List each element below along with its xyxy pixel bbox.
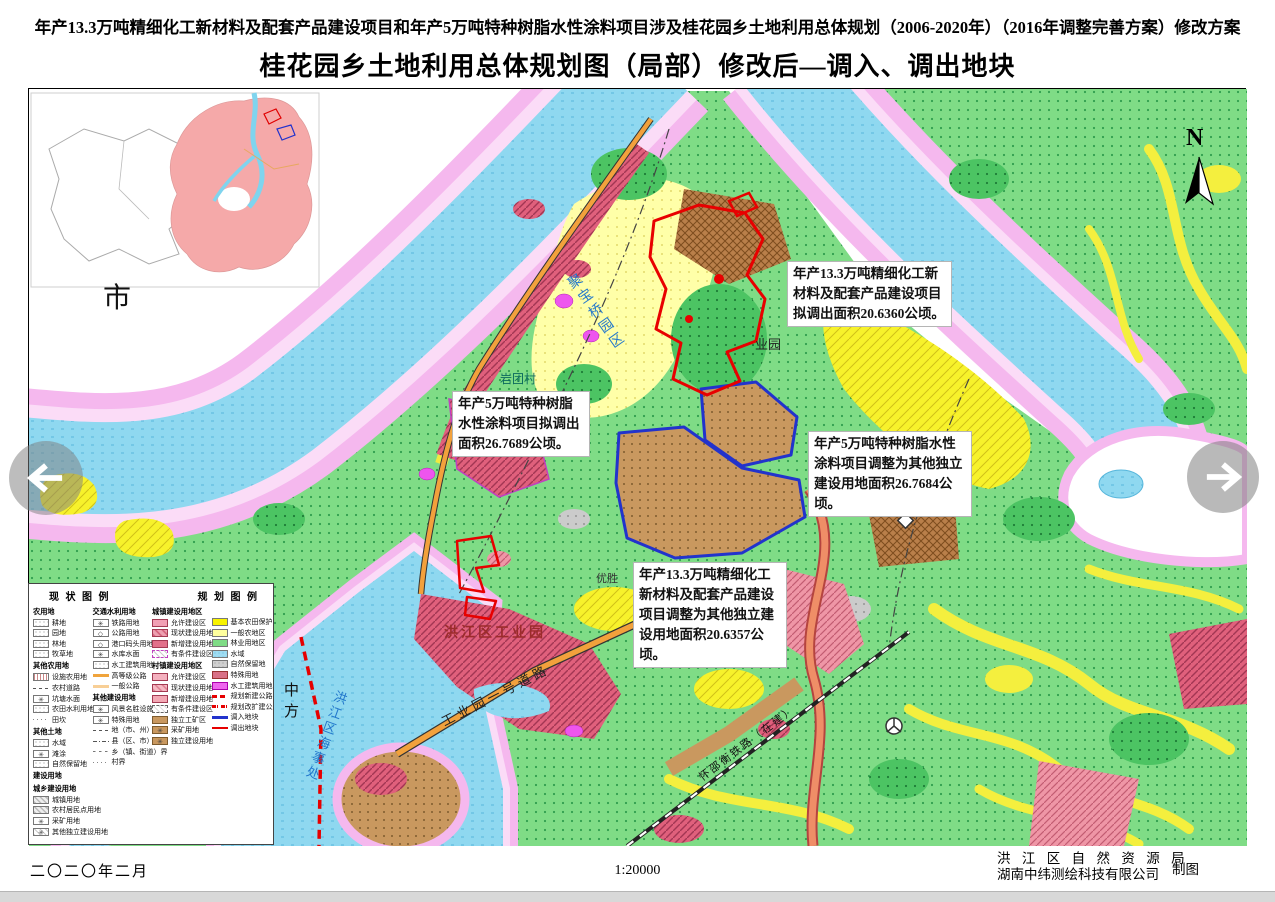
legend-item-label: 耕地 [52, 618, 66, 628]
legend-item-label: 新增建设用地 [171, 639, 213, 649]
legend-item-label: 特殊用地 [231, 670, 259, 680]
legend-item: 规划新建公路 [212, 692, 272, 701]
legend-item: 现状建设用地 [152, 629, 212, 638]
legend-item: 港口码头用地 [93, 639, 153, 648]
right-arrow-icon [1201, 457, 1245, 497]
legend-item: 规划改扩建公路 [212, 702, 272, 711]
legend-item-label: 规划改扩建公路 [231, 702, 275, 712]
legend-swatch-bdash2 [93, 751, 109, 752]
legend-item: 林业用地区 [212, 639, 272, 648]
legend-item-label: 允许建设区 [171, 672, 206, 682]
legend-item-label: 农村道路 [52, 683, 80, 693]
river-island [337, 747, 465, 846]
legend-swatch-blueline [212, 716, 228, 719]
legend-item-label: 现状建设用地 [171, 628, 213, 638]
map-legend: 现 状 图 例 规 划 图 例 农用地耕地园地林地牧草地其他农用地设施农用地农村… [28, 583, 274, 845]
legend-item: 有条件建设区 [152, 650, 212, 659]
legend-swatch-symd [93, 629, 109, 637]
legend-swatch-roselight [152, 695, 168, 703]
annotation-out-chemical: 年产13.3万吨精细化工新材料及配套产品建设项目拟调出面积20.6360公顷。 [787, 261, 952, 327]
inset-district-area [170, 98, 312, 272]
legend-item-label: 有条件建设区 [171, 704, 213, 714]
legend-item-label: 特殊用地 [112, 715, 140, 725]
legend-swatch-hatchg [33, 806, 49, 814]
legend-swatch-redline [212, 727, 228, 730]
legend-item: 城镇用地 [33, 795, 93, 804]
legend-item-label: 田坎 [52, 715, 66, 725]
legend-item: 坑塘水面 [33, 694, 93, 703]
legend-item: 水域 [33, 738, 93, 747]
legend-column-status-1: 农用地耕地园地林地牧草地其他农用地设施农用地农村道路坑塘水面农田水利用地田坎其他… [33, 604, 93, 838]
legend-item-label: 现状建设用地 [171, 683, 213, 693]
legend-item-label: 采矿用地 [171, 725, 199, 735]
legend-item: 新增建设用地 [152, 639, 212, 648]
legend-item-label: 农田水利用地 [52, 704, 94, 714]
legend-swatch-hatchg [33, 796, 49, 804]
legend-item-label: 林地 [52, 639, 66, 649]
agency-block: 洪 江 区 自 然 资 源 局 湖南中纬测绘科技有限公司 [997, 851, 1169, 883]
legend-swatch-tan [152, 716, 168, 724]
legend-item-label: 自然保留地 [52, 759, 87, 769]
next-image-button[interactable] [1187, 441, 1259, 513]
legend-item: 独立工矿区 [152, 715, 212, 724]
legend-group-header: 其他建设用地 [93, 693, 153, 703]
legend-item-label: 调出地块 [231, 723, 259, 733]
legend-swatch-dot [33, 739, 49, 747]
legend-column-status-2: 交通水利用地铁路用地公路用地港口码头用地水库水面水工建筑用地高等级公路一般公路其… [93, 604, 153, 838]
legend-swatch-hatchsym [33, 828, 49, 836]
legend-item: 高等级公路 [93, 671, 153, 680]
legend-item-label: 公路用地 [112, 628, 140, 638]
legend-item-label: 水库水面 [112, 649, 140, 659]
legend-group-header: 建设用地 [33, 771, 93, 781]
legend-group-header: 其他农用地 [33, 661, 93, 671]
agency-line2: 湖南中纬测绘科技有限公司 [997, 867, 1169, 883]
legend-group-header: 其他土地 [33, 727, 93, 737]
legend-swatch-magenta [212, 682, 228, 690]
legend-item-label: 允许建设区 [171, 618, 206, 628]
legend-swatch-symw [33, 750, 49, 758]
legend-group-header: 城乡建设用地 [33, 784, 93, 794]
legend-swatch-symw [93, 650, 109, 658]
legend-item-label: 林业用地区 [231, 638, 266, 648]
annotation-in-chemical: 年产13.3万吨精细化工新材料及配套产品建设项目调整为其他独立建设用地面积20.… [633, 562, 787, 668]
legend-item-label: 坑塘水面 [52, 694, 80, 704]
legend-group-header: 农用地 [33, 607, 93, 617]
legend-column-plan-2: 基本农田保护区一般农地区林业用地区水域自然保留地特殊用地水工建筑用地规划新建公路… [212, 616, 272, 838]
legend-swatch-reddashdot [212, 705, 228, 708]
legend-item-label: 规划新建公路 [231, 691, 273, 701]
legend-swatch-cyan [212, 650, 228, 658]
legend-swatch-rosehatch [152, 629, 168, 637]
legend-item-label: 独立建设用地 [171, 736, 213, 746]
map-date: 二〇二〇年二月 [30, 860, 149, 881]
legend-swatch-dot [33, 629, 49, 637]
planning-map-page: 年产13.3万吨精细化工新材料及配套产品建设项目和年产5万吨特种树脂水性涂料项目… [0, 0, 1275, 902]
legend-swatch-symw [93, 705, 109, 713]
legend-swatch-dot [93, 661, 109, 669]
legend-item: 自然保留地 [33, 760, 93, 769]
legend-item: 牧草地 [33, 650, 93, 659]
legend-swatch-bdot [93, 762, 109, 763]
legend-item: 设施农用地 [33, 673, 93, 682]
legend-group-header: 村镇建设用地区 [152, 661, 212, 671]
legend-item: 农村道路 [33, 684, 93, 693]
legend-item: 现状建设用地 [152, 684, 212, 693]
legend-item-label: 园地 [52, 628, 66, 638]
legend-item-label: 自然保留地 [231, 659, 266, 669]
legend-swatch-dot [33, 619, 49, 627]
legend-item-label: 水工建筑用地 [112, 660, 154, 670]
legend-item: 特殊用地 [93, 715, 153, 724]
legend-item-label: 独立工矿区 [171, 715, 206, 725]
legend-swatch-dot [33, 760, 49, 768]
legend-swatch-gray [212, 660, 228, 668]
legend-swatch-linelo [93, 685, 109, 688]
legend-swatch-symw [33, 695, 49, 703]
legend-item: 田坎 [33, 715, 93, 724]
bottom-scroll-strip[interactable] [0, 891, 1275, 902]
legend-item-label: 高等级公路 [112, 671, 147, 681]
document-title: 年产13.3万吨精细化工新材料及配套产品建设项目和年产5万吨特种树脂水性涂料项目… [0, 14, 1275, 38]
legend-item: 一般农地区 [212, 628, 272, 637]
legend-plan-title: 规 划 图 例 [198, 588, 260, 603]
legend-swatch-bdash [93, 730, 109, 731]
legend-swatch-pinkc2 [152, 673, 168, 681]
legend-item: 农田水利用地 [33, 705, 93, 714]
legend-swatch-tansym [152, 737, 168, 745]
legend-swatch-bdashdot [93, 741, 109, 742]
legend-item: 自然保留地 [212, 660, 272, 669]
legend-group-header: 交通水利用地 [93, 607, 153, 617]
legend-item: 调出地块 [212, 724, 272, 733]
legend-swatch-lineo [93, 674, 109, 677]
legend-swatch-tansym [152, 726, 168, 734]
legend-item-label: 一般公路 [112, 681, 140, 691]
legend-item: 采矿用地 [152, 726, 212, 735]
legend-swatch-dot [33, 650, 49, 658]
legend-item-label: 铁路用地 [112, 618, 140, 628]
legend-swatch-pinkc [152, 619, 168, 627]
legend-item: 采矿用地 [33, 816, 93, 825]
legend-item-label: 设施农用地 [52, 672, 87, 682]
annotation-out-resin: 年产5万吨特种树脂水性涂料项目拟调出面积26.7689公顷。 [452, 391, 590, 457]
legend-swatch-reddash [212, 695, 228, 698]
legend-item-label: 水工建筑用地 [231, 681, 273, 691]
legend-item: 村界 [93, 758, 153, 767]
legend-swatch-dot [33, 705, 49, 713]
legend-swatch-symw [93, 716, 109, 724]
legend-item: 允许建设区 [152, 673, 212, 682]
legend-item: 一般公路 [93, 682, 153, 691]
inset-overview-map [31, 93, 319, 287]
legend-group-header: 城镇建设用地区 [152, 607, 212, 617]
legend-item-label: 城镇用地 [52, 795, 80, 805]
legend-item: 调入地块 [212, 713, 272, 722]
legend-swatch-dot [33, 640, 49, 648]
legend-item: 乡（镇、街道）界 [93, 747, 153, 756]
legend-swatch-symw [33, 817, 49, 825]
legend-item: 滩涂 [33, 749, 93, 758]
legend-swatch-rosehatch2 [152, 684, 168, 692]
legend-item-label: 有条件建设区 [171, 649, 213, 659]
legend-item-label: 调入地块 [231, 712, 259, 722]
legend-swatch-rose [152, 640, 168, 648]
legend-swatch-bdash [33, 688, 49, 689]
legend-swatch-symd [93, 640, 109, 648]
legend-swatch-rosedark [212, 671, 228, 679]
legend-swatch-paleyellow [212, 629, 228, 637]
annotation-in-resin: 年产5万吨特种树脂水性涂料项目调整为其他独立建设用地面积26.7684公顷。 [808, 431, 972, 517]
legend-item: 新增建设用地 [152, 694, 212, 703]
legend-item: 其他独立建设用地 [33, 827, 93, 836]
legend-swatch-green [212, 639, 228, 647]
legend-status-title: 现 状 图 例 [49, 588, 111, 603]
legend-item: 风景名胜设施用地 [93, 705, 153, 714]
legend-item-label: 基本农田保护区 [231, 617, 275, 627]
map-title: 桂花园乡土地利用总体规划图（局部）修改后—调入、调出地块 [0, 46, 1275, 83]
legend-item-label: 滩涂 [52, 749, 66, 759]
legend-item-label: 水域 [52, 738, 66, 748]
legend-swatch-grid [33, 673, 49, 681]
legend-item: 特殊用地 [212, 671, 272, 680]
legend-swatch-bdot [33, 719, 49, 720]
legend-swatch-cond [152, 650, 168, 658]
legend-item: 地（市、州）界 [93, 726, 153, 735]
legend-item: 独立建设用地 [152, 737, 212, 746]
legend-item-label: 一般农地区 [231, 628, 266, 638]
legend-item: 园地 [33, 629, 93, 638]
legend-item: 水工建筑用地 [212, 681, 272, 690]
legend-item: 农村居民点用地 [33, 806, 93, 815]
previous-image-button[interactable] [9, 441, 83, 515]
legend-swatch-yellow [212, 618, 228, 626]
legend-item-label: 港口码头用地 [112, 639, 154, 649]
legend-item: 有条件建设区 [152, 705, 212, 714]
legend-swatch-symw [93, 619, 109, 627]
legend-item: 基本农田保护区 [212, 618, 272, 627]
legend-column-plan-1: 城镇建设用地区允许建设区现状建设用地新增建设用地有条件建设区村镇建设用地区允许建… [152, 604, 212, 838]
legend-item-label: 新增建设用地 [171, 694, 213, 704]
legend-item: 水工建筑用地 [93, 660, 153, 669]
legend-item: 水域 [212, 649, 272, 658]
legend-item-label: 水域 [231, 649, 245, 659]
legend-swatch-cond2 [152, 705, 168, 713]
legend-item-label: 采矿用地 [52, 816, 80, 826]
agency-line1: 洪 江 区 自 然 资 源 局 [997, 851, 1169, 867]
left-arrow-icon [24, 458, 68, 498]
legend-item: 铁路用地 [93, 618, 153, 627]
legend-item: 县（区、市）界 [93, 737, 153, 746]
legend-item-label: 村界 [112, 757, 126, 767]
legend-item: 林地 [33, 639, 93, 648]
legend-item: 公路用地 [93, 629, 153, 638]
legend-item: 耕地 [33, 618, 93, 627]
legend-item: 允许建设区 [152, 618, 212, 627]
legend-item: 水库水面 [93, 650, 153, 659]
legend-item-label: 牧草地 [52, 649, 73, 659]
